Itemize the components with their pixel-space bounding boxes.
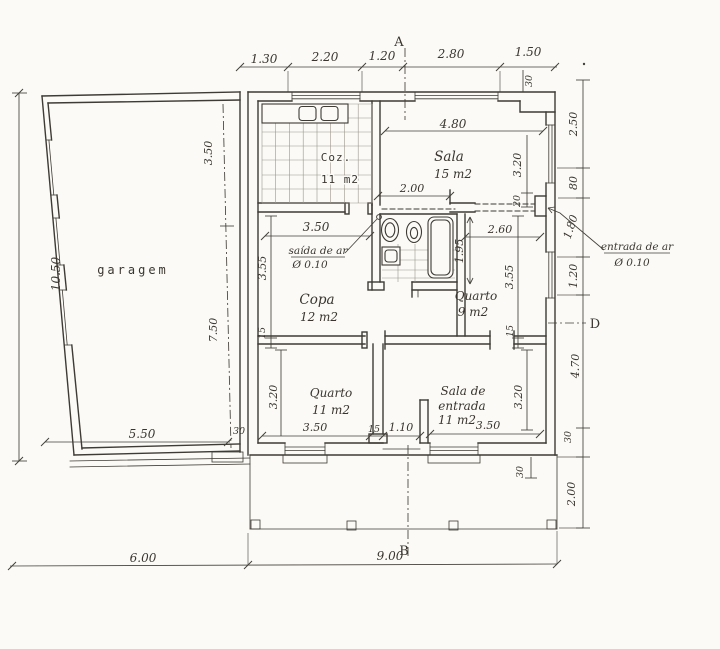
bathtub-icon	[428, 217, 453, 278]
entrada-de-ar-diameter: Ø 0.10	[613, 257, 650, 269]
dim-entrada-width: 3.50	[476, 419, 501, 432]
porch-column	[251, 520, 260, 529]
dim-quarto9-width: 2.60	[487, 223, 513, 236]
dim-quarto11-width: 3.50	[303, 421, 328, 434]
dim-top-4: 2.80	[437, 47, 465, 61]
dim-right-5: 4.70	[569, 354, 582, 380]
marker-d: D	[590, 317, 600, 332]
room-area-copa: 12 m2	[300, 310, 338, 324]
marker-a: A	[393, 35, 404, 50]
washbasin-icon	[382, 247, 400, 265]
dim-garage-top: 3.50	[202, 141, 215, 166]
dim-top-wall: 30	[524, 75, 535, 87]
dim-sala-wall: 20	[512, 195, 523, 208]
dim-sala-door: 2.00	[399, 182, 425, 195]
room-label-entrada-2: entrada	[438, 399, 485, 413]
saida-de-ar-diameter: Ø 0.10	[291, 259, 328, 271]
labels: garagem Coz. 11 m2 Sala 15 m2 Copa 12 m2…	[49, 35, 674, 565]
room-area-sala: 15 m2	[434, 167, 472, 181]
entrada-de-ar-label: entrada de ar	[601, 241, 674, 253]
toilet-icon	[382, 219, 399, 242]
room-label-garagem: garagem	[97, 263, 169, 277]
garage-outline	[42, 92, 250, 467]
saida-de-ar-label: saída de ar	[289, 245, 349, 257]
dim-quarto11-height: 3.20	[267, 385, 280, 410]
dim-quarto9-wall: 15	[505, 325, 516, 337]
dim-garage-wall: 30	[233, 426, 245, 437]
kitchen-sink-left	[299, 107, 316, 121]
dim-bottom-1: 6.00	[130, 551, 157, 565]
dim-top-2: 2.20	[311, 50, 339, 64]
room-area-coz: 11 m2	[321, 173, 359, 186]
dim-entrada-height: 3.20	[512, 385, 525, 410]
room-label-quarto11: Quarto	[310, 386, 353, 400]
room-label-entrada-1: Sala de	[441, 384, 486, 398]
dim-top-1: 1.30	[251, 52, 278, 66]
dim-right-2: 80	[567, 176, 580, 190]
dim-quarto11-wall: 15	[368, 424, 380, 435]
dim-right-4: 1.20	[567, 264, 580, 289]
porch-column	[547, 520, 556, 529]
dim-quarto9-height: 3.55	[503, 265, 516, 290]
floor-plan-canvas: garagem Coz. 11 m2 Sala 15 m2 Copa 12 m2…	[0, 0, 720, 649]
room-label-sala: Sala	[434, 149, 464, 165]
dim-right-6: 30	[563, 431, 574, 443]
dim-right-7: 2.00	[565, 482, 578, 508]
dim-copa-height: 3.55	[256, 256, 269, 281]
dim-top-5: 1.50	[515, 45, 542, 59]
room-label-quarto9: Quarto	[455, 289, 498, 303]
room-area-quarto9: 9 m2	[458, 305, 488, 319]
dim-hall-width: 1.10	[389, 421, 414, 434]
room-area-entrada: 11 m2	[438, 413, 476, 427]
dim-bottom-2: 9.00	[377, 549, 404, 563]
bidet-icon	[407, 222, 422, 243]
room-area-quarto11: 11 m2	[312, 403, 350, 417]
dim-right-1: 2.50	[567, 112, 580, 138]
floor-plan-sheet: garagem Coz. 11 m2 Sala 15 m2 Copa 12 m2…	[0, 0, 720, 649]
dim-sala-width: 4.80	[439, 117, 467, 131]
porch-outline	[250, 455, 557, 530]
dim-top-3: 1.20	[369, 49, 396, 63]
dim-right-3: 1.80	[561, 213, 581, 240]
dim-copa-width: 3.50	[303, 220, 330, 234]
dim-garage-width: 5.50	[129, 427, 156, 441]
room-label-copa: Copa	[299, 292, 334, 308]
dim-bath-depth: 1.95	[453, 239, 466, 264]
dim-left-total: 10.50	[49, 256, 63, 291]
kitchen-sink-right	[321, 107, 338, 121]
dim-garage-bottom: 7.50	[207, 318, 220, 343]
room-label-coz: Coz.	[321, 151, 352, 164]
dim-porch-step: 30	[515, 466, 526, 478]
dim-sala-height: 3.20	[511, 153, 524, 178]
dim-copa-wall: 15	[257, 327, 268, 339]
